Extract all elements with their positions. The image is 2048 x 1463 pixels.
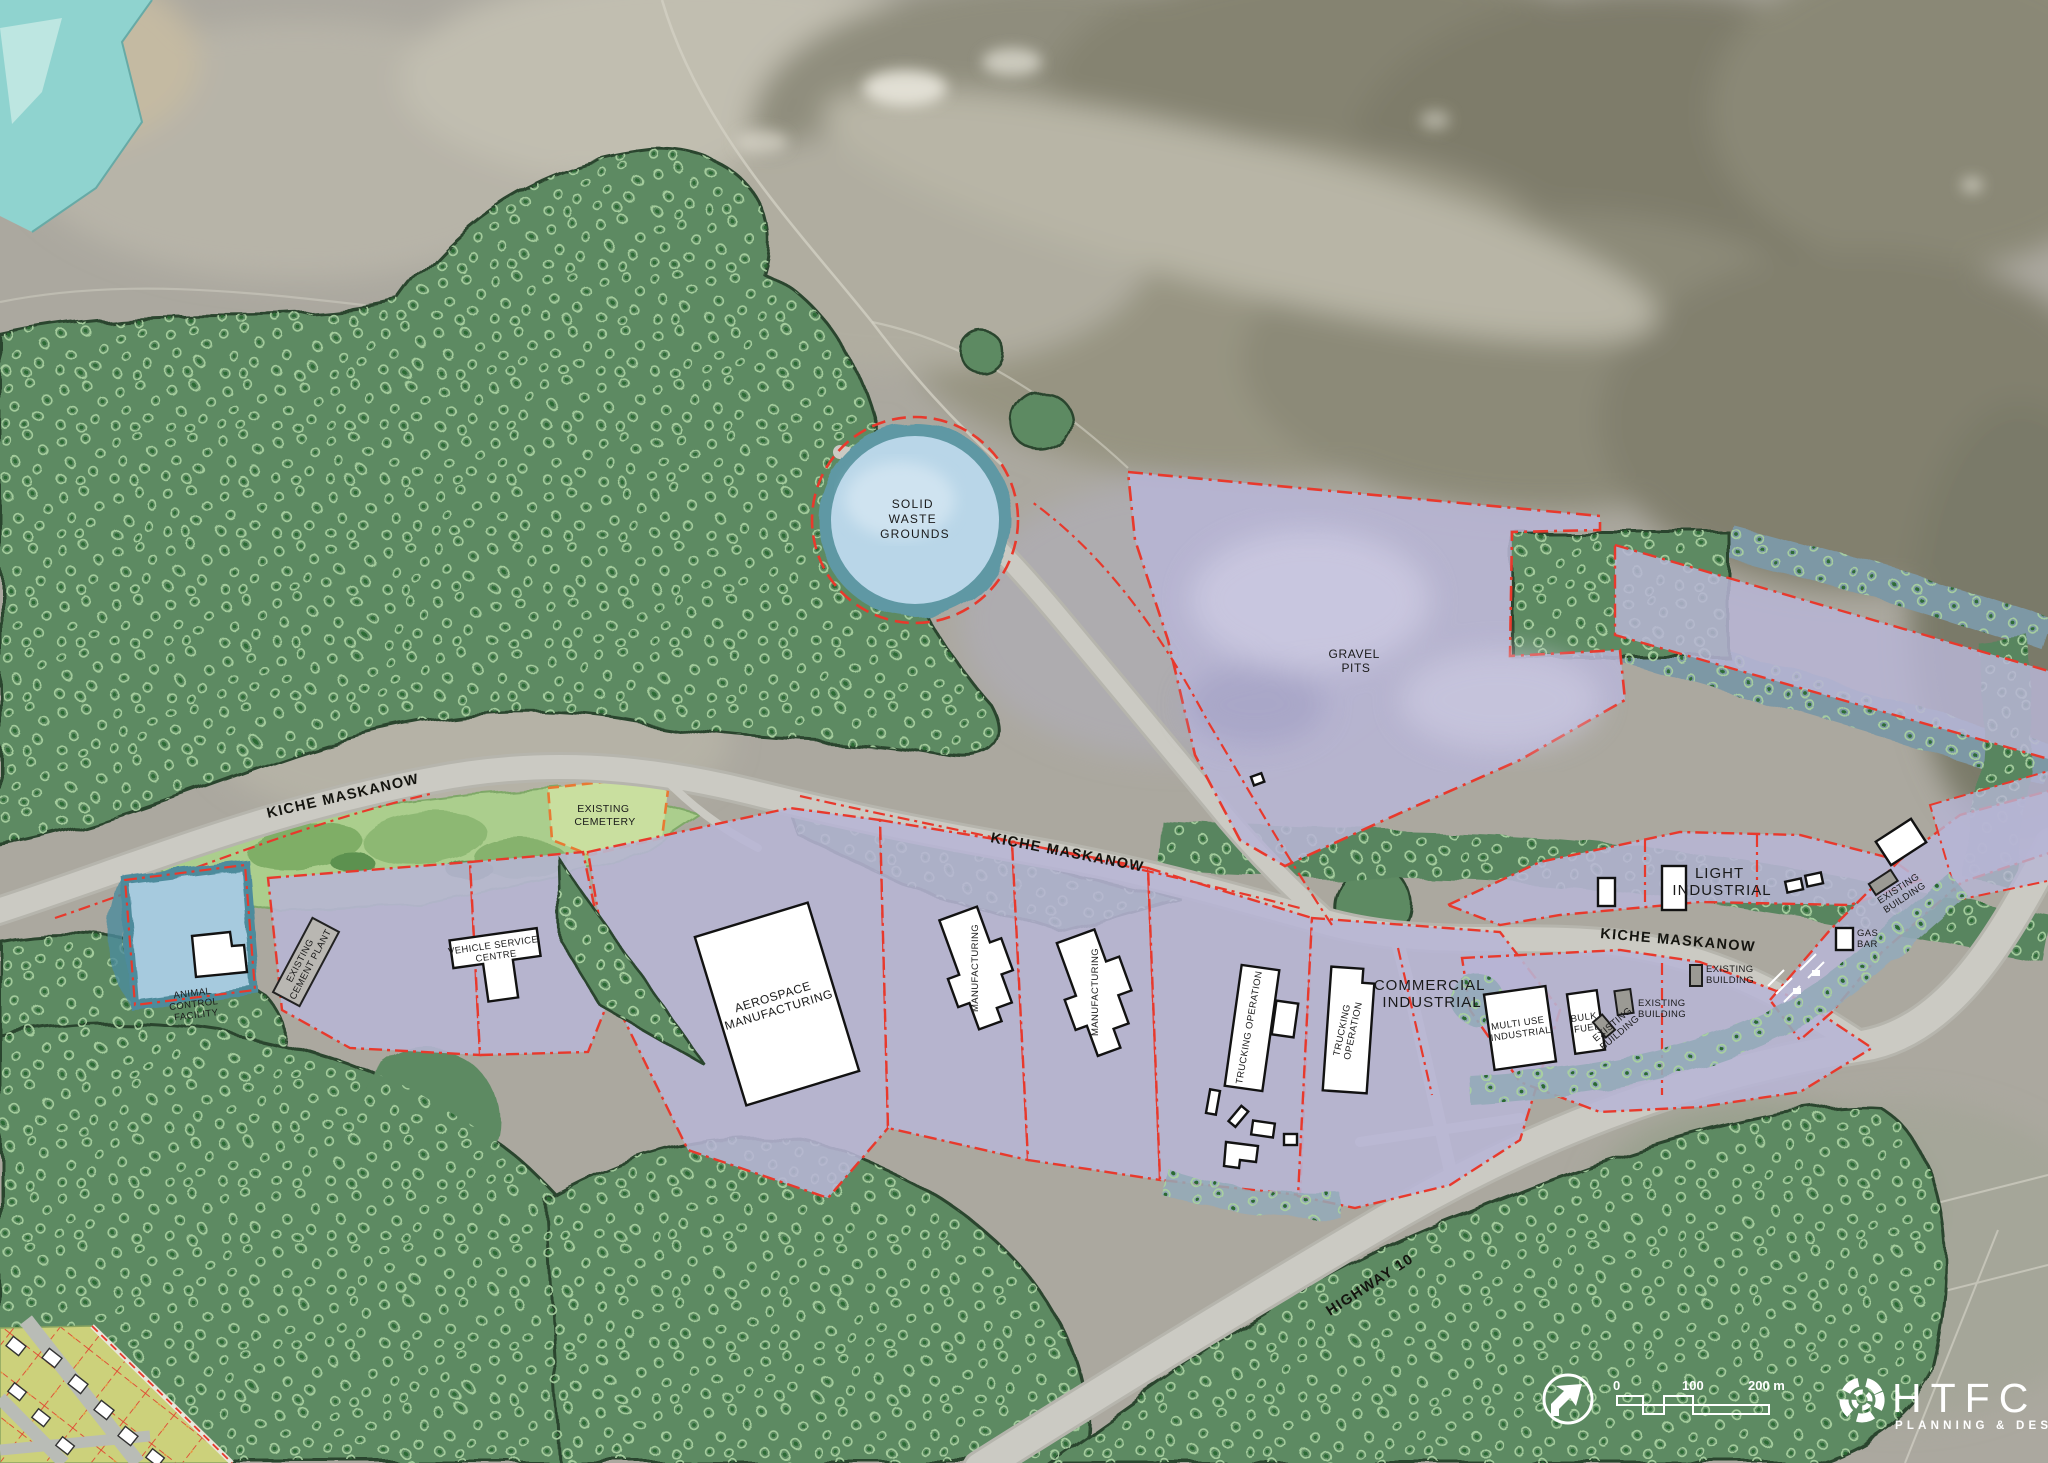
multiuse-building: MULTI USE INDUSTRIAL bbox=[1484, 986, 1556, 1070]
manufacturing-label-1: MANUFACTURING bbox=[970, 924, 981, 1012]
htfc-logo-name: HTFC bbox=[1892, 1375, 2037, 1421]
htfc-logo-tagline: PLANNING & DESIGN bbox=[1895, 1420, 2048, 1432]
light-industrial-building-4 bbox=[1805, 872, 1823, 886]
scale-mid: 100 bbox=[1682, 1378, 1704, 1393]
cemetery-label: EXISTING CEMETERY bbox=[574, 803, 635, 828]
existing-building-2 bbox=[1690, 965, 1702, 986]
trucking-building-2: TRUCKING OPERATION bbox=[1323, 967, 1376, 1094]
gas-bar-label: GAS BAR bbox=[1857, 928, 1881, 950]
existing-building-label-2: EXISTING BUILDING bbox=[1706, 964, 1757, 986]
scale-start: 0 bbox=[1613, 1378, 1620, 1393]
commercial-industrial-label: COMMERCIAL INDUSTRIAL bbox=[1374, 977, 1490, 1011]
gas-bar-building bbox=[1836, 928, 1853, 950]
site-plan-map: EXISTING CEMETERY bbox=[0, 0, 2048, 1463]
scale-end: 200 m bbox=[1748, 1378, 1785, 1393]
manufacturing-label-2: MANUFACTURING bbox=[1090, 948, 1101, 1036]
light-industrial-building-1 bbox=[1598, 878, 1615, 906]
trucking-small-building bbox=[1272, 1001, 1299, 1038]
existing-building-label-1: EXISTING BUILDING bbox=[1638, 998, 1689, 1020]
map-canvas: EXISTING CEMETERY bbox=[0, 0, 2048, 1463]
light-industrial-building-3 bbox=[1785, 878, 1803, 892]
